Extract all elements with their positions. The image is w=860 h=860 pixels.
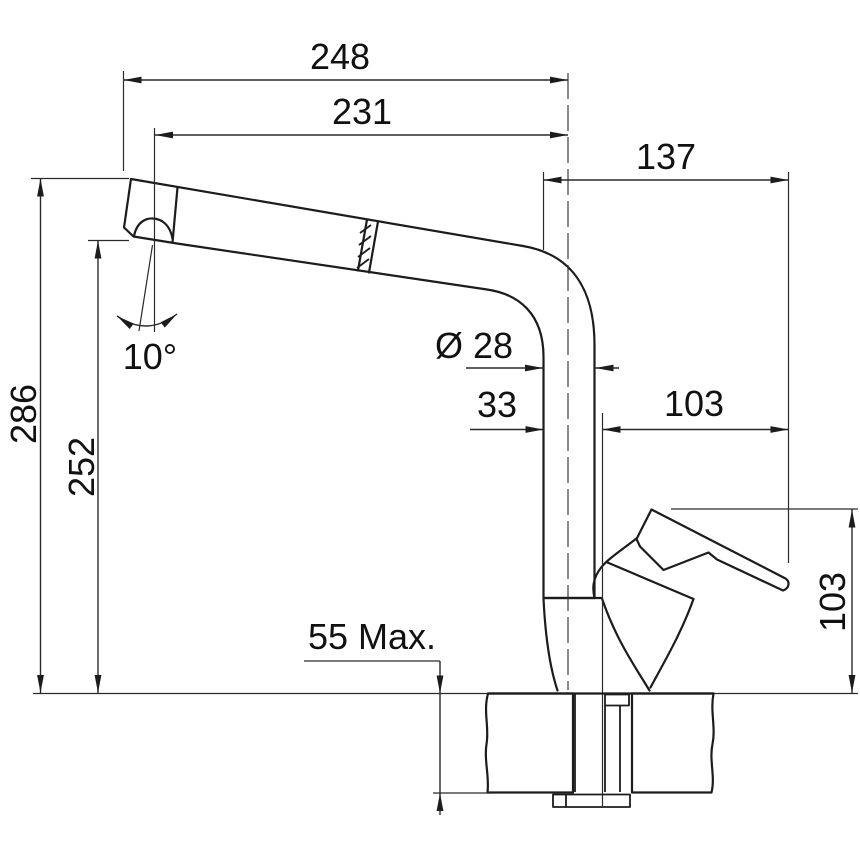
cartridge-housing-bottom-edge bbox=[608, 563, 694, 600]
faucet-dimension-drawing: 248 231 137 286 252 10° Ø 28 33 103 55 M… bbox=[0, 0, 860, 860]
label-handle-height: 103 bbox=[812, 572, 853, 632]
label-outlet-height: 252 bbox=[61, 437, 102, 497]
technical-drawing-page: 248 231 137 286 252 10° Ø 28 33 103 55 M… bbox=[0, 0, 860, 860]
mounting-hardware bbox=[553, 694, 630, 807]
pullout-joint-band bbox=[357, 220, 378, 273]
countertop-left-block bbox=[486, 694, 573, 793]
countertop-right-block bbox=[632, 694, 714, 793]
angle-arc bbox=[117, 314, 177, 326]
label-rear-reach: 137 bbox=[636, 136, 696, 177]
label-spout-reach: 231 bbox=[332, 91, 392, 132]
base-right-edge bbox=[602, 599, 650, 691]
label-rear-offset: 103 bbox=[664, 383, 724, 424]
angle-reference-slant bbox=[139, 245, 153, 331]
label-axis-offset: 33 bbox=[477, 384, 517, 425]
spray-nozzle-dome bbox=[134, 218, 173, 238]
shank-flange bbox=[605, 695, 629, 706]
base-left-edge bbox=[544, 599, 558, 691]
handle-lever bbox=[637, 510, 789, 591]
spray-head-divider bbox=[173, 188, 178, 243]
cartridge-housing-right-edge bbox=[651, 599, 694, 688]
mounting-washer bbox=[553, 795, 630, 808]
spout-and-column-outline bbox=[124, 179, 595, 598]
label-head-angle: 10° bbox=[123, 336, 177, 377]
label-overall-height: 286 bbox=[3, 384, 44, 444]
dimension-lines bbox=[41, 80, 853, 815]
cartridge-housing-left-edge bbox=[593, 539, 636, 599]
countertop-section bbox=[486, 694, 714, 793]
faucet-outline bbox=[124, 179, 789, 691]
label-spout-diameter: Ø 28 bbox=[435, 325, 513, 366]
label-deck-thickness: 55 Max. bbox=[308, 616, 436, 657]
label-overall-reach: 248 bbox=[310, 36, 370, 77]
